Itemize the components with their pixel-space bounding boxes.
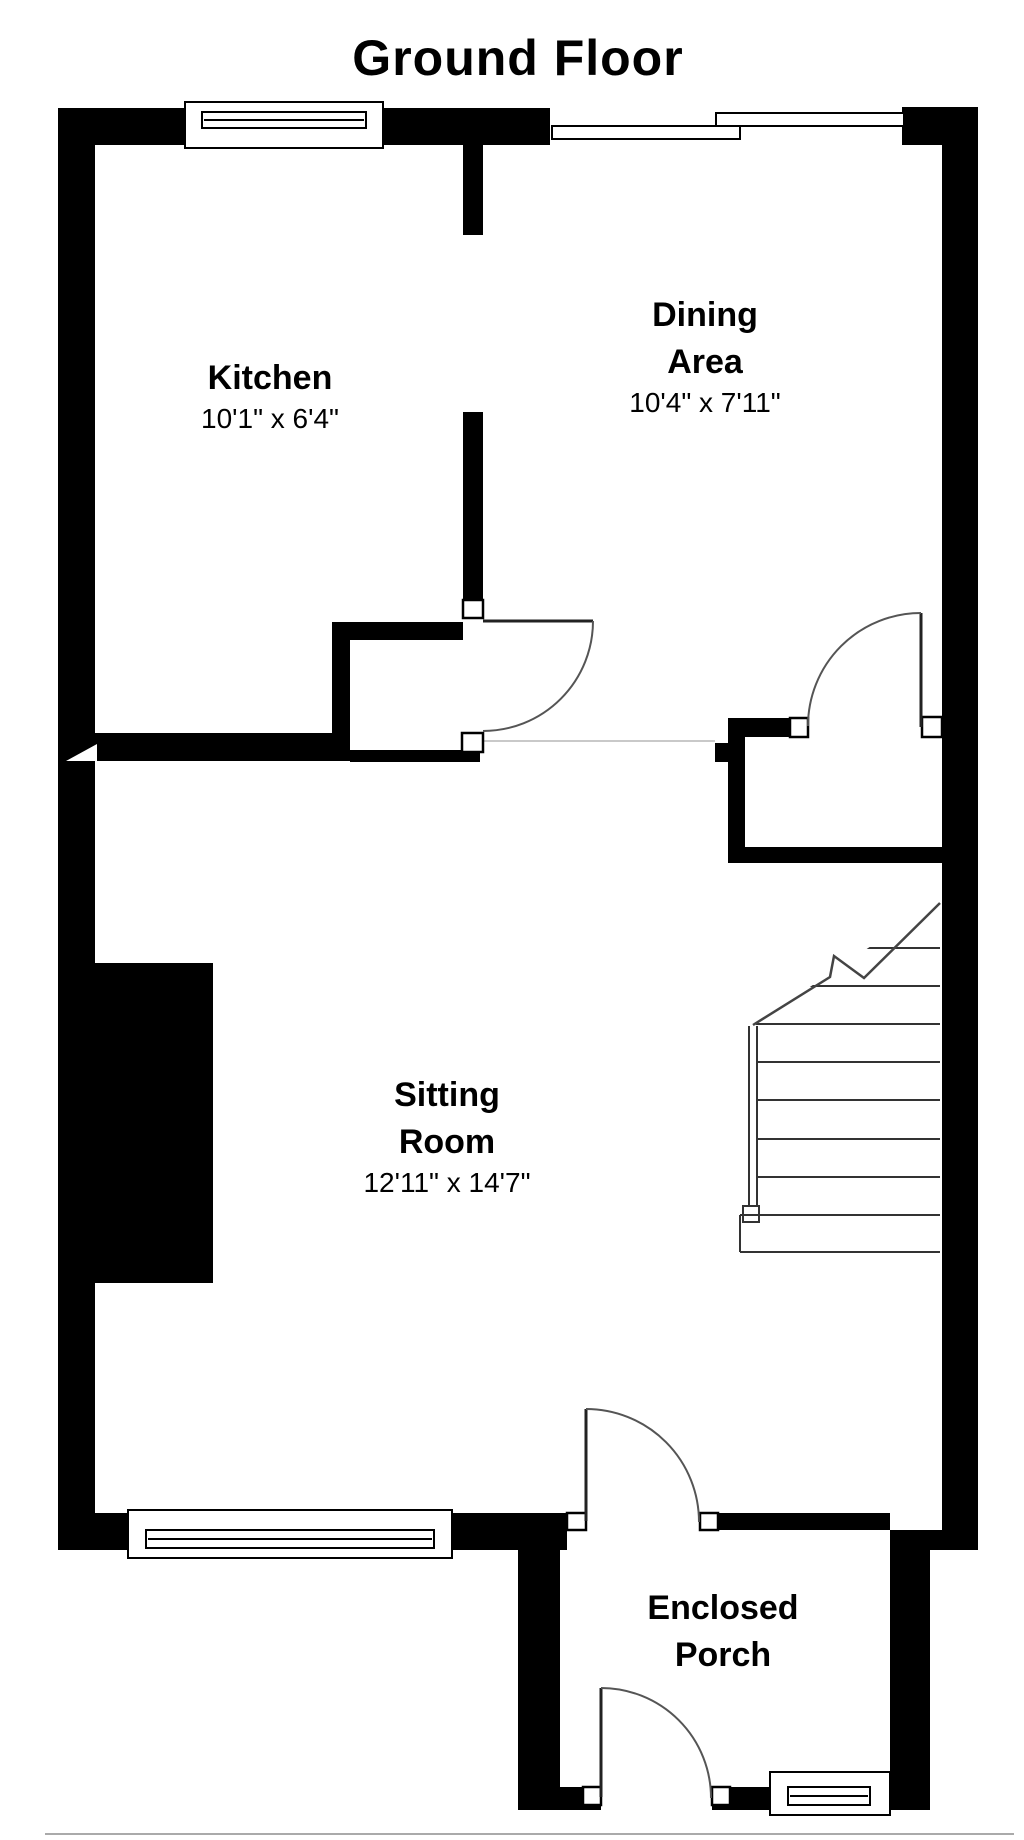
kitchen-door-arc: [483, 621, 593, 731]
wall-left: [58, 108, 95, 1550]
dining-door-strike-jamb: [790, 718, 808, 737]
dining-name-line2: Area: [585, 339, 825, 386]
sitting-bottom-window: [128, 1510, 452, 1558]
sitting-dimensions: 12'11" x 14'7": [327, 1166, 567, 1200]
front-door-arc: [601, 1688, 711, 1798]
room-label-dining: Dining Area 10'4" x 7'11": [585, 292, 825, 420]
dining-name-line1: Dining: [585, 292, 825, 339]
kitchen-door-strike-jamb: [462, 733, 483, 752]
wall-porch-top: [718, 1513, 890, 1530]
room-label-porch: Enclosed Porch: [603, 1585, 843, 1679]
porch-bottom-window: [770, 1772, 890, 1815]
wall-hall-top: [728, 718, 790, 737]
sitting-name-line1: Sitting: [327, 1072, 567, 1119]
wall-top-right-corner: [902, 107, 978, 145]
page-title: Ground Floor: [262, 30, 774, 86]
wall-kitchen-divider-upper: [463, 145, 483, 235]
chimney-breast: [58, 963, 213, 1283]
wall-right: [942, 145, 978, 1550]
wall-porch-right: [890, 1550, 930, 1810]
room-label-sitting: Sitting Room 12'11" x 14'7": [327, 1072, 567, 1200]
porch-front-door: [583, 1688, 730, 1805]
wall-sitting-north: [95, 733, 350, 761]
sitting-porch-door: [567, 1409, 718, 1530]
dining-door-hinge-jamb: [922, 717, 942, 737]
floorplan-page: Ground Floor Kitchen 10'1" x 6'4" Dining…: [0, 0, 1024, 1840]
wall-right-foot: [890, 1530, 978, 1550]
kitchen-dimensions: 10'1" x 6'4": [150, 402, 390, 436]
porch-door-arc: [586, 1409, 699, 1522]
kitchen-door-hinge-jamb: [463, 600, 483, 618]
kitchen-top-window: [185, 102, 383, 148]
porch-door-hinge-jamb: [567, 1513, 586, 1530]
wall-porch-left: [518, 1550, 560, 1810]
dining-dimensions: 10'4" x 7'11": [585, 386, 825, 420]
porch-door-strike-jamb: [700, 1513, 718, 1530]
wall-kitchen-south-vertical: [332, 640, 350, 733]
dining-top-window-left: [552, 126, 740, 139]
porch-name-line2: Porch: [603, 1632, 843, 1679]
dining-door-arc: [808, 613, 921, 726]
room-label-kitchen: Kitchen 10'1" x 6'4": [150, 355, 390, 436]
dining-top-window-right: [716, 113, 904, 126]
kitchen-door: [462, 600, 593, 752]
floorplan-drawing: [0, 0, 1024, 1840]
front-door-strike-jamb: [712, 1787, 730, 1805]
porch-name-line1: Enclosed: [603, 1585, 843, 1632]
sitting-name-line2: Room: [327, 1119, 567, 1166]
wall-kitchen-south-horizontal: [332, 622, 463, 640]
wall-sitting-north-sill: [350, 750, 480, 762]
kitchen-name: Kitchen: [150, 355, 390, 402]
wall-kitchen-divider-lower: [463, 412, 483, 600]
dining-hall-door: [790, 613, 942, 737]
wall-hall-left: [728, 737, 745, 863]
front-door-hinge-jamb: [583, 1787, 601, 1805]
staircase: [740, 900, 940, 1252]
wall-hall-nub: [715, 743, 728, 762]
wall-hall-bottom: [728, 847, 942, 863]
